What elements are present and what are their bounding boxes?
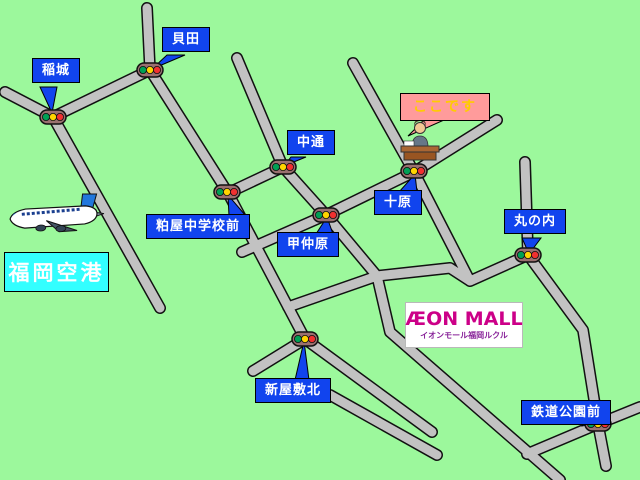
traffic-light-kaida: [137, 63, 163, 77]
airport-label: 福岡空港: [4, 252, 109, 292]
traffic-light-inagi: [40, 110, 66, 124]
label-tetsudo-koen-mae: 鉄道公園前: [521, 400, 611, 425]
aeon-mall-subtitle: イオンモール福岡ルクル: [420, 332, 508, 340]
traffic-light-marunouchi: [515, 248, 541, 262]
aeon-mall-sign: ÆON MALL イオンモール福岡ルクル: [405, 302, 523, 348]
aeon-mall-logo: ÆON MALL: [405, 310, 522, 329]
route-map: 稲城 貝田 中通 粕屋中学校前 甲仲原 十原 丸の内 新屋敷北 鉄道公園前 ここ…: [0, 0, 640, 480]
traffic-light-tobaru: [401, 164, 427, 178]
traffic-light-konakabaru: [313, 208, 339, 222]
label-konakabaru: 甲仲原: [277, 232, 339, 257]
label-kasuya-chugakko-mae: 粕屋中学校前: [146, 214, 250, 239]
label-inagi: 稲城: [32, 58, 80, 83]
airplane-icon: [9, 193, 105, 235]
here-callout: ここです: [400, 93, 490, 121]
label-nakadori: 中通: [287, 130, 335, 155]
traffic-light-shinyashiki-kita: [292, 332, 318, 346]
traffic-light-kasuya: [214, 185, 240, 199]
traffic-light-nakadori: [270, 160, 296, 174]
label-kaida: 貝田: [162, 27, 210, 52]
label-shinyashiki-kita: 新屋敷北: [255, 378, 331, 403]
label-tobaru: 十原: [374, 190, 422, 215]
label-marunouchi: 丸の内: [504, 209, 566, 234]
